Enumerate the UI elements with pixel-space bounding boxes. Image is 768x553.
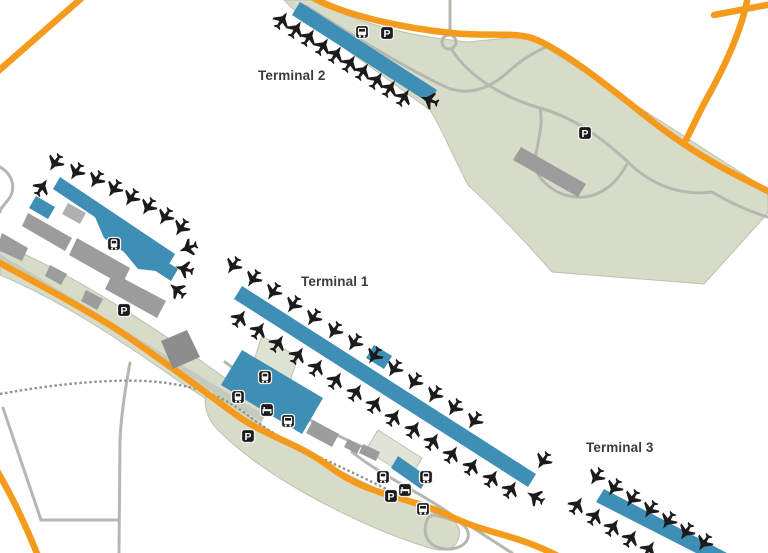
terminal-1-label: Terminal 1 — [301, 274, 369, 289]
train-icon — [258, 370, 273, 385]
parking-icon — [117, 303, 132, 318]
hotel-icon — [260, 403, 275, 418]
parking-icon — [578, 126, 593, 141]
bus-icon — [281, 414, 296, 429]
terminal-2-label: Terminal 2 — [258, 68, 326, 83]
bus-icon — [355, 25, 370, 40]
parking-icon — [241, 429, 256, 444]
hotel-icon — [398, 483, 413, 498]
parking-icon — [384, 489, 399, 504]
train-icon — [419, 470, 434, 485]
train-icon — [231, 390, 246, 405]
bus-icon — [416, 502, 431, 517]
poi-layer: Terminal 2Terminal 1Terminal 3 — [0, 0, 768, 553]
parking-icon — [380, 26, 395, 41]
train-icon — [107, 237, 122, 252]
airport-terminal-map: P — [0, 0, 768, 553]
train-icon — [376, 470, 391, 485]
terminal-3-label: Terminal 3 — [586, 440, 654, 455]
